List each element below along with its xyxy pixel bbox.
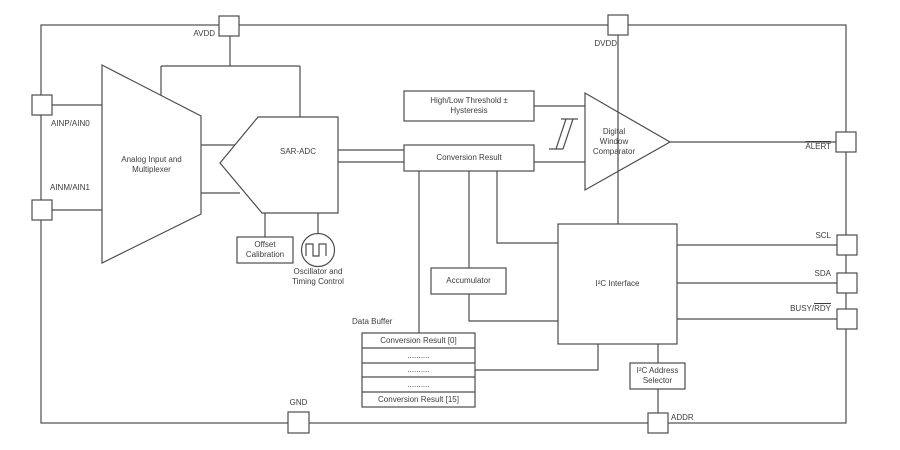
pin-scl xyxy=(837,235,857,255)
block-label-conversion-result: Conversion Result xyxy=(404,145,534,171)
data-buffer-row: Conversion Result [15] xyxy=(362,392,475,407)
functional-block-diagram: AVDD DVDD AINP/AIN0 AINM/AIN1 ALERT SCL … xyxy=(0,0,900,450)
label-sda: SDA xyxy=(781,269,831,279)
block-label-oscillator: Oscillator and Timing Control xyxy=(286,267,350,287)
data-buffer-row: .......... xyxy=(362,348,475,362)
data-buffer-row: Conversion Result [0] xyxy=(362,333,475,348)
pin-avdd xyxy=(219,16,239,36)
pin-sda xyxy=(837,273,857,293)
label-scl: SCL xyxy=(781,231,831,241)
label-ainp: AINP/AIN0 xyxy=(51,119,90,129)
wire-accumulator-i2c xyxy=(469,294,558,321)
pin-busy-rdy xyxy=(837,309,857,329)
block-label-threshold: High/Low Threshold ± Hysteresis xyxy=(404,91,534,121)
pin-addr xyxy=(648,413,668,433)
wire-buffer-i2c xyxy=(475,344,598,370)
block-label-i2c-address-selector: I²C Address Selector xyxy=(630,363,685,389)
block-label-accumulator: Accumulator xyxy=(431,268,506,294)
block-label-multiplexer: Analog Input and Multiplexer xyxy=(102,116,201,214)
block-label-comparator: Digital Window Comparator xyxy=(588,122,640,162)
hysteresis-icon xyxy=(549,119,578,149)
label-avdd: AVDD xyxy=(175,29,215,39)
label-busy-rdy: BUSY/RDY xyxy=(761,304,831,314)
wire-result-i2c xyxy=(497,171,558,243)
label-addr: ADDR xyxy=(671,413,694,423)
label-gnd: GND xyxy=(283,398,314,408)
block-label-sar-adc: SAR-ADC xyxy=(258,147,338,157)
data-buffer-row: .......... xyxy=(362,363,475,376)
pin-alert xyxy=(836,132,856,152)
data-buffer-row: .......... xyxy=(362,377,475,391)
pin-dvdd xyxy=(608,15,628,35)
sar-adc-shape xyxy=(220,117,338,213)
data-buffer-title: Data Buffer xyxy=(352,317,392,327)
block-label-offset-calibration: Offset Calibration xyxy=(237,237,293,263)
pin-gnd xyxy=(288,412,309,433)
pin-ainp xyxy=(32,95,52,115)
label-dvdd: DVDD xyxy=(577,39,617,49)
label-ainm: AINM/AIN1 xyxy=(50,183,90,193)
label-alert: ALERT xyxy=(781,142,831,152)
block-label-i2c-interface: I²C Interface xyxy=(558,224,677,344)
pin-ainm xyxy=(32,200,52,220)
